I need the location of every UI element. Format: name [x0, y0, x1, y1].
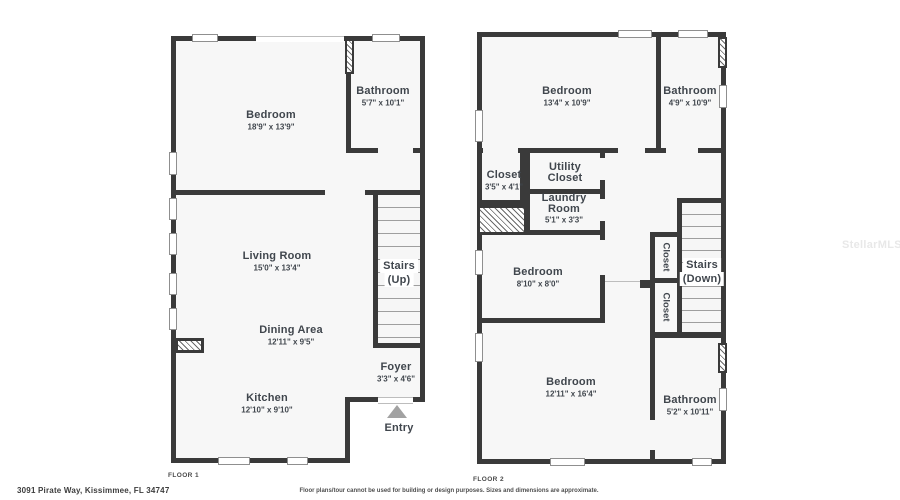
- door-hatch: [718, 37, 727, 68]
- wall-opening: [256, 36, 344, 42]
- room-dims-bathroom: 5'7" x 10'1": [362, 99, 405, 108]
- room-label-bedroom-mid: Bedroom: [513, 266, 563, 278]
- room-dims-living-room: 15'0" x 13'4": [254, 264, 301, 273]
- door-opening: [600, 158, 605, 180]
- storage-hatch: [477, 205, 527, 235]
- window: [169, 273, 177, 295]
- window: [287, 457, 308, 465]
- window: [719, 85, 727, 108]
- wall: [477, 459, 726, 464]
- room-label-bedroom-top: Bedroom: [542, 85, 592, 97]
- window: [192, 34, 218, 42]
- window: [550, 458, 585, 466]
- floor1-tag: FLOOR 1: [168, 472, 199, 479]
- door-opening: [483, 148, 518, 153]
- window: [169, 308, 177, 330]
- wall: [171, 458, 350, 463]
- stellar-mls-watermark: StellarMLS: [842, 239, 900, 251]
- room-label-stairs-down: Stairs: [683, 258, 721, 272]
- window: [692, 458, 712, 466]
- door-opening: [600, 199, 605, 221]
- window: [678, 30, 708, 38]
- wall: [345, 397, 350, 463]
- room-dims-bathroom-bottom: 5'2" x 10'11": [667, 408, 714, 417]
- room-dims-closet-tl: 3'5" x 4'1": [485, 183, 523, 192]
- window: [475, 333, 483, 362]
- window: [618, 30, 652, 38]
- property-address: 3091 Pirate Way, Kissimmee, FL 34747: [17, 486, 169, 495]
- floorplan-canvas: Bedroom 18'9" x 13'9" Bathroom 5'7" x 10…: [0, 0, 900, 500]
- room-dims-laundry-room: 5'1" x 3'3": [545, 216, 583, 225]
- entry-arrow-icon: [387, 405, 407, 418]
- fireplace-hatch: [175, 338, 204, 353]
- disclaimer-text: Floor plans/tour cannot be used for buil…: [299, 488, 598, 494]
- doorway-line: [605, 281, 640, 282]
- room-label-entry: Entry: [384, 422, 413, 434]
- window: [719, 388, 727, 411]
- room-label-stairs-up: Stairs: [380, 259, 418, 273]
- room-dims-dining-area: 12'11" x 9'5": [268, 338, 315, 347]
- room-dims-kitchen: 12'10" x 9'10": [241, 406, 292, 415]
- door-opening: [666, 148, 698, 153]
- room-label-bedroom-bottom: Bedroom: [546, 376, 596, 388]
- window: [169, 233, 177, 255]
- wall: [650, 332, 726, 338]
- room-label-closet-tl: Closet: [487, 169, 522, 181]
- room-label-closet-lower: Closet: [661, 292, 672, 321]
- wall: [373, 343, 425, 348]
- door-opening: [325, 190, 365, 195]
- window: [169, 152, 177, 175]
- door-hatch: [345, 39, 354, 74]
- wall: [477, 32, 482, 464]
- window: [372, 34, 400, 42]
- room-label-bathroom: Bathroom: [356, 85, 410, 97]
- room-dims-bedroom: 18'9" x 13'9": [248, 123, 295, 132]
- room-label-bedroom: Bedroom: [246, 109, 296, 121]
- door-opening: [650, 420, 655, 450]
- door-opening: [378, 148, 413, 153]
- room-label-bathroom-bottom: Bathroom: [663, 394, 717, 406]
- room-dims-bedroom-mid: 8'10" x 8'0": [517, 280, 560, 289]
- room-label-stairs-down-sub: (Down): [680, 272, 724, 286]
- room-label-dining-area: Dining Area: [259, 324, 323, 336]
- room-dims-bedroom-bottom: 12'11" x 16'4": [546, 390, 597, 399]
- wall: [656, 32, 661, 153]
- door-hatch: [718, 343, 727, 373]
- window: [218, 457, 250, 465]
- room-label-foyer: Foyer: [381, 361, 412, 373]
- wall: [477, 318, 605, 323]
- floor2-tag: FLOOR 2: [473, 476, 504, 483]
- entry-door-opening: [378, 397, 413, 404]
- room-label-closet-upper: Closet: [661, 242, 672, 271]
- room-label-stairs-up-sub: (Up): [385, 273, 414, 287]
- door-opening: [600, 240, 605, 275]
- room-label-utility-closet: Utility Closet: [540, 162, 590, 184]
- window: [475, 250, 483, 275]
- room-dims-foyer: 3'3" x 4'6": [377, 375, 415, 384]
- room-dims-bedroom-top: 13'4" x 10'9": [544, 99, 591, 108]
- room-label-kitchen: Kitchen: [246, 392, 288, 404]
- window: [169, 198, 177, 220]
- window: [475, 110, 483, 142]
- room-label-living-room: Living Room: [243, 250, 312, 262]
- room-label-bathroom-top: Bathroom: [663, 85, 717, 97]
- door-opening: [618, 148, 645, 153]
- room-label-laundry-room: Laundry Room: [538, 193, 590, 215]
- room-dims-bathroom-top: 4'9" x 10'9": [669, 99, 712, 108]
